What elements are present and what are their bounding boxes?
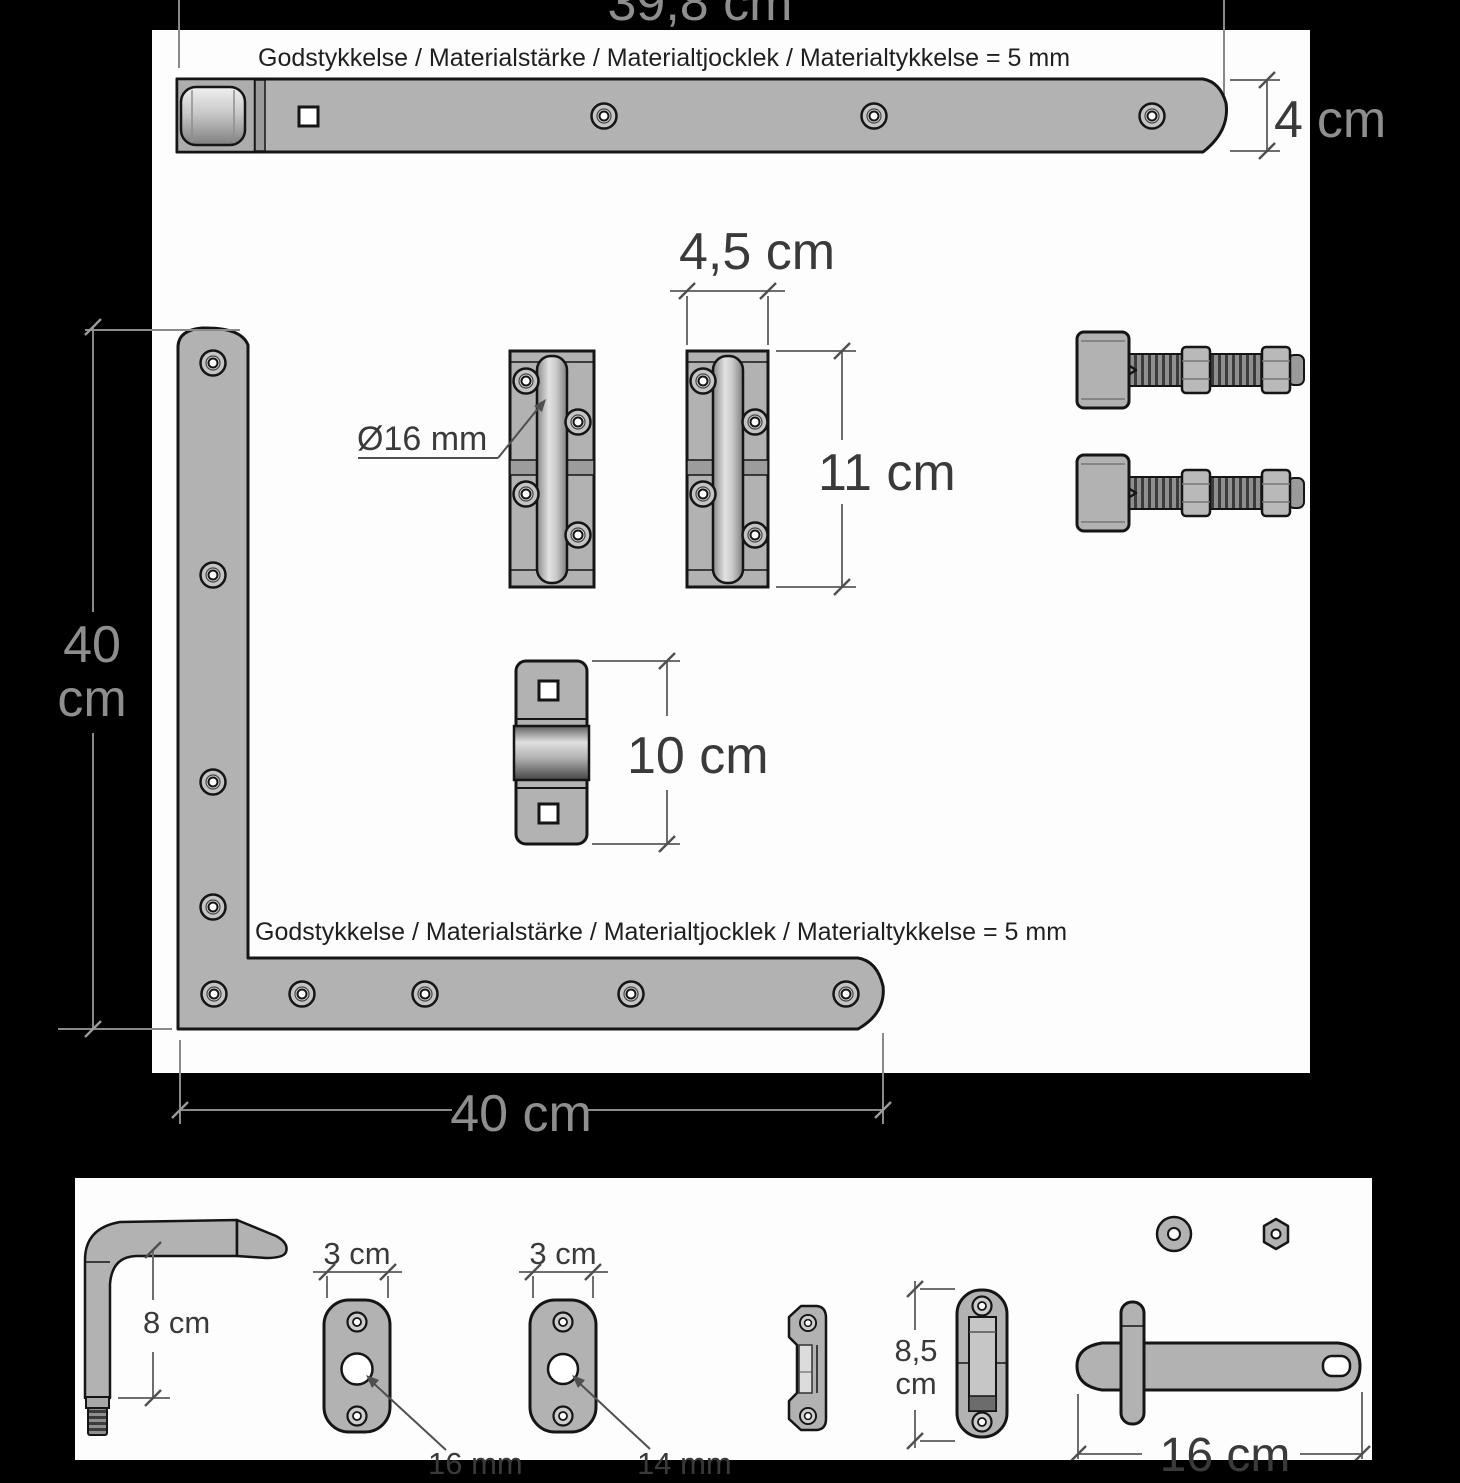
l-hinge-length-label: 40 cm bbox=[438, 1084, 604, 1144]
keeper-height-unit: cm bbox=[885, 1367, 947, 1400]
l-hinge-height-number: 40 bbox=[40, 618, 144, 672]
keeper-height-label: 8,5 cm bbox=[885, 1334, 947, 1400]
latch-handle bbox=[1121, 1302, 1144, 1424]
hex-nut bbox=[1182, 347, 1210, 393]
bolt-plate-14mm bbox=[530, 1300, 596, 1432]
plate2-hole-label: 14 mm bbox=[637, 1446, 732, 1482]
top-thickness-note: Godstykkelse / Materialstärke / Material… bbox=[258, 44, 1070, 73]
strap-width-number: 4 bbox=[1274, 91, 1303, 149]
square-hole bbox=[539, 681, 558, 700]
plate1-hole-label: 16 mm bbox=[428, 1446, 523, 1482]
latch-keeper-front bbox=[957, 1290, 1007, 1437]
pin-hinge-height-label: 11 cm bbox=[818, 443, 956, 503]
keeper-height-number: 8,5 bbox=[885, 1334, 947, 1367]
hex-nut bbox=[1182, 470, 1210, 516]
plate1-width-label: 3 cm bbox=[317, 1236, 397, 1272]
pin-height-label: 8 cm bbox=[143, 1305, 210, 1341]
bolt-plate-16mm bbox=[324, 1300, 390, 1432]
latch-length-label: 16 cm bbox=[1140, 1428, 1310, 1483]
hinge-pin bbox=[537, 356, 567, 583]
plate2-width-label: 3 cm bbox=[523, 1236, 603, 1272]
technical-drawing-page: { "top_section": { "length_label": "39,8… bbox=[0, 0, 1460, 1460]
pin-hinge-left bbox=[510, 351, 594, 587]
hinge-pin bbox=[713, 356, 743, 583]
gate-bracket bbox=[514, 661, 589, 844]
strap-width-label: 4cm bbox=[1274, 90, 1386, 150]
hex-nut bbox=[1264, 1219, 1288, 1249]
pin-hinge-right bbox=[687, 351, 768, 587]
bolt-hole bbox=[342, 1354, 373, 1385]
l-hinge-height-unit: cm bbox=[40, 672, 144, 726]
bracket-height-label: 10 cm bbox=[627, 726, 769, 786]
threaded-tip bbox=[88, 1408, 107, 1435]
pin-diameter-label: Ø16 mm bbox=[357, 420, 487, 459]
washer bbox=[1157, 1217, 1191, 1251]
pin-hinge-width-label: 4,5 cm bbox=[662, 222, 852, 282]
strap-width-unit: cm bbox=[1317, 91, 1386, 149]
square-hole bbox=[299, 107, 318, 126]
top-hinge-strap bbox=[177, 79, 1227, 152]
top-length-label: 39,8 cm bbox=[560, 0, 840, 33]
l-hinge-height-label: 40 cm bbox=[40, 618, 144, 726]
hex-nut bbox=[1262, 470, 1290, 516]
bolt-hole bbox=[548, 1354, 578, 1384]
bracket-roller bbox=[514, 726, 589, 780]
hex-nut bbox=[1262, 347, 1290, 393]
square-hole bbox=[539, 804, 558, 823]
l-hinge-thickness-note: Godstykkelse / Materialstärke / Material… bbox=[255, 918, 1067, 947]
latch-slot bbox=[1323, 1356, 1350, 1376]
